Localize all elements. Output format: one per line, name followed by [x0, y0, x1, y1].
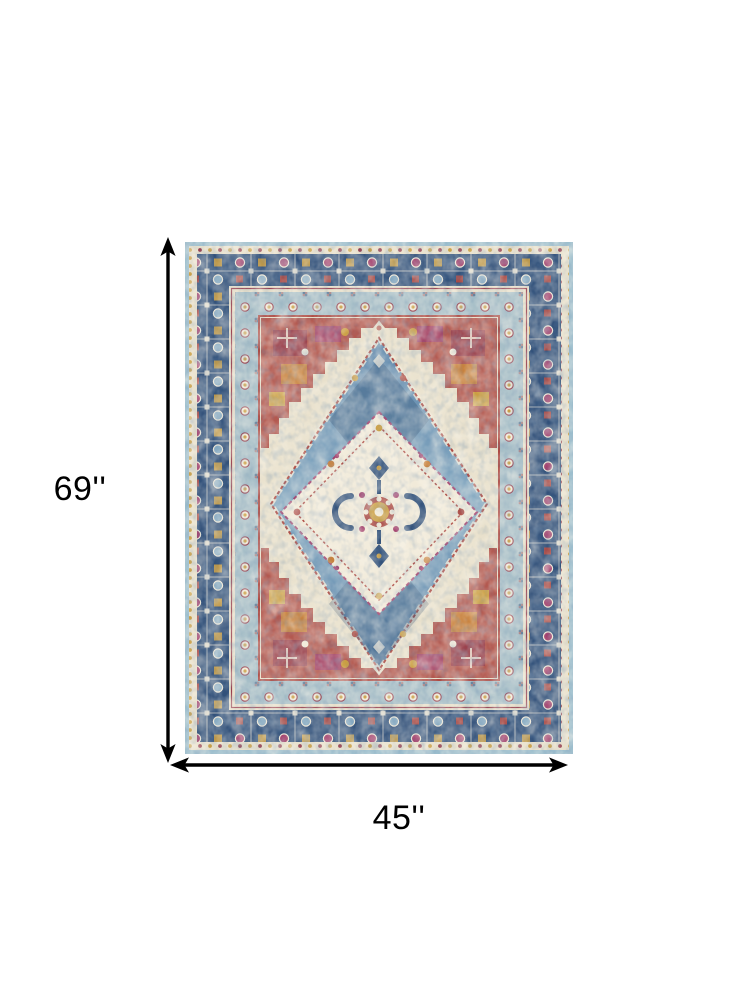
vertical-double-arrow-icon — [157, 236, 179, 764]
product-dimension-image: 69'' 45'' — [0, 0, 739, 1000]
horizontal-double-arrow-icon — [169, 754, 569, 776]
rug-image — [185, 242, 573, 754]
height-dimension-label: 69'' — [30, 470, 130, 508]
rug-graphic — [185, 242, 573, 754]
rug-mottle-texture — [185, 242, 573, 754]
width-dimension-label: 45'' — [347, 799, 451, 837]
